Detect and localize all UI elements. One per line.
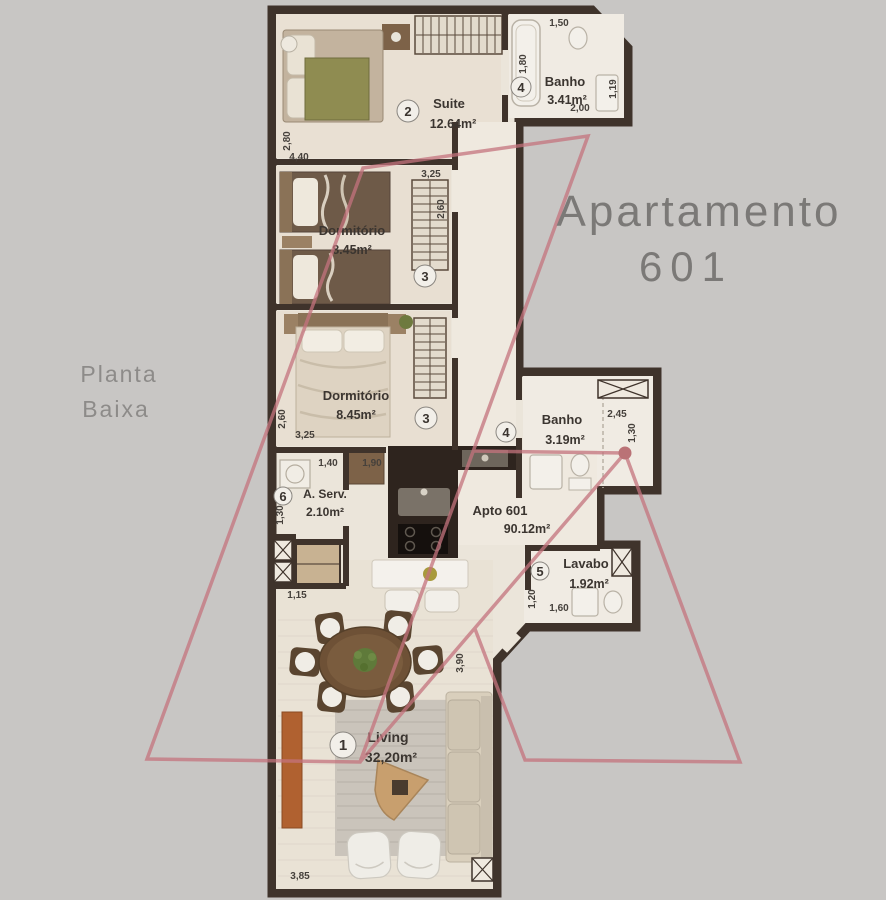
dimension-label: 4,40 xyxy=(289,152,309,163)
toilet-icon xyxy=(569,27,587,49)
room-number: 4 xyxy=(502,425,510,440)
armchair-icon xyxy=(396,831,441,880)
toilet-icon xyxy=(604,591,622,613)
dimension-label: 1,60 xyxy=(549,603,569,614)
room-number: 4 xyxy=(517,80,525,95)
apto-name: Apto 601 xyxy=(473,503,528,518)
servico-fixtures xyxy=(280,460,310,488)
armchair-icon xyxy=(346,831,391,880)
plant-icon xyxy=(399,315,413,329)
dimension-label: 1,30 xyxy=(627,423,638,443)
sofa-icon xyxy=(446,692,492,862)
room-name: Dormitório xyxy=(323,388,390,403)
dimension-label: 3,25 xyxy=(295,430,315,441)
dimension-label: 2,00 xyxy=(570,103,590,114)
subtitle-line2: Baixa xyxy=(82,396,150,422)
room-area: 32,20m² xyxy=(365,749,417,765)
lavabo-fixtures xyxy=(572,588,622,616)
room-number: 6 xyxy=(279,489,286,504)
apto-area: 90.12m² xyxy=(504,522,551,536)
room-name: Lavabo xyxy=(563,556,609,571)
room-number: 2 xyxy=(404,104,411,119)
dimension-label: 2,45 xyxy=(607,409,627,420)
room-name: Banho xyxy=(542,412,583,427)
island-counter-icon xyxy=(372,560,468,588)
room-area: 1.92m² xyxy=(569,577,609,591)
watermark-dot xyxy=(619,447,632,460)
room-area: 3.19m² xyxy=(545,433,585,447)
double-bed-icon xyxy=(298,313,388,327)
room-number: 3 xyxy=(421,269,428,284)
room-name: Banho xyxy=(545,74,586,89)
stool-icon xyxy=(425,590,459,612)
dimension-label: 1,50 xyxy=(549,18,569,29)
room-area: 12.64m² xyxy=(430,117,477,131)
room-number: 1 xyxy=(339,737,347,754)
nightstand-icon xyxy=(282,236,312,248)
stool-icon xyxy=(385,590,419,612)
room-area: 8.45m² xyxy=(332,243,372,257)
corridor-floor xyxy=(452,122,516,450)
dimension-label: 1,90 xyxy=(362,458,382,469)
dimension-label: 1,19 xyxy=(608,79,619,99)
dimension-label: 1,40 xyxy=(318,458,338,469)
dimension-label: 2,60 xyxy=(277,409,288,429)
dimension-label: 3,25 xyxy=(421,169,441,180)
washtub-icon xyxy=(280,460,310,488)
side-table-icon xyxy=(281,36,297,52)
dimension-label: 2,80 xyxy=(282,131,293,151)
room-name: Dormitório xyxy=(319,223,386,238)
dimension-label: 1,80 xyxy=(518,54,529,74)
subtitle-line1: Planta xyxy=(80,361,157,387)
room-number: 3 xyxy=(422,411,429,426)
tv-cabinet-icon xyxy=(282,712,302,828)
watermark-crossbar xyxy=(474,451,625,453)
page-title-line2: 601 xyxy=(639,243,733,290)
room-area: 8.45m² xyxy=(336,408,376,422)
dimension-label: 2,60 xyxy=(436,199,447,219)
dimension-label: 3,90 xyxy=(455,653,466,673)
dimension-label: 1,30 xyxy=(275,505,286,525)
dimension-label: 3,85 xyxy=(290,871,310,882)
floor-plan-image: 2 Suite 12.64m² 4 Banho 3.41m² Dormitóri… xyxy=(0,0,886,900)
room-name: A. Serv. xyxy=(303,487,347,501)
room-number: 5 xyxy=(536,564,543,579)
dimension-label: 1,15 xyxy=(287,590,307,601)
toilet-icon xyxy=(571,454,589,476)
page-title-line1: Apartamento xyxy=(557,187,842,236)
room-area: 2.10m² xyxy=(306,505,344,519)
room-name: Suite xyxy=(433,96,465,111)
dimension-label: 1,20 xyxy=(527,589,538,609)
sink-icon xyxy=(572,588,598,616)
sink-icon xyxy=(530,455,562,489)
